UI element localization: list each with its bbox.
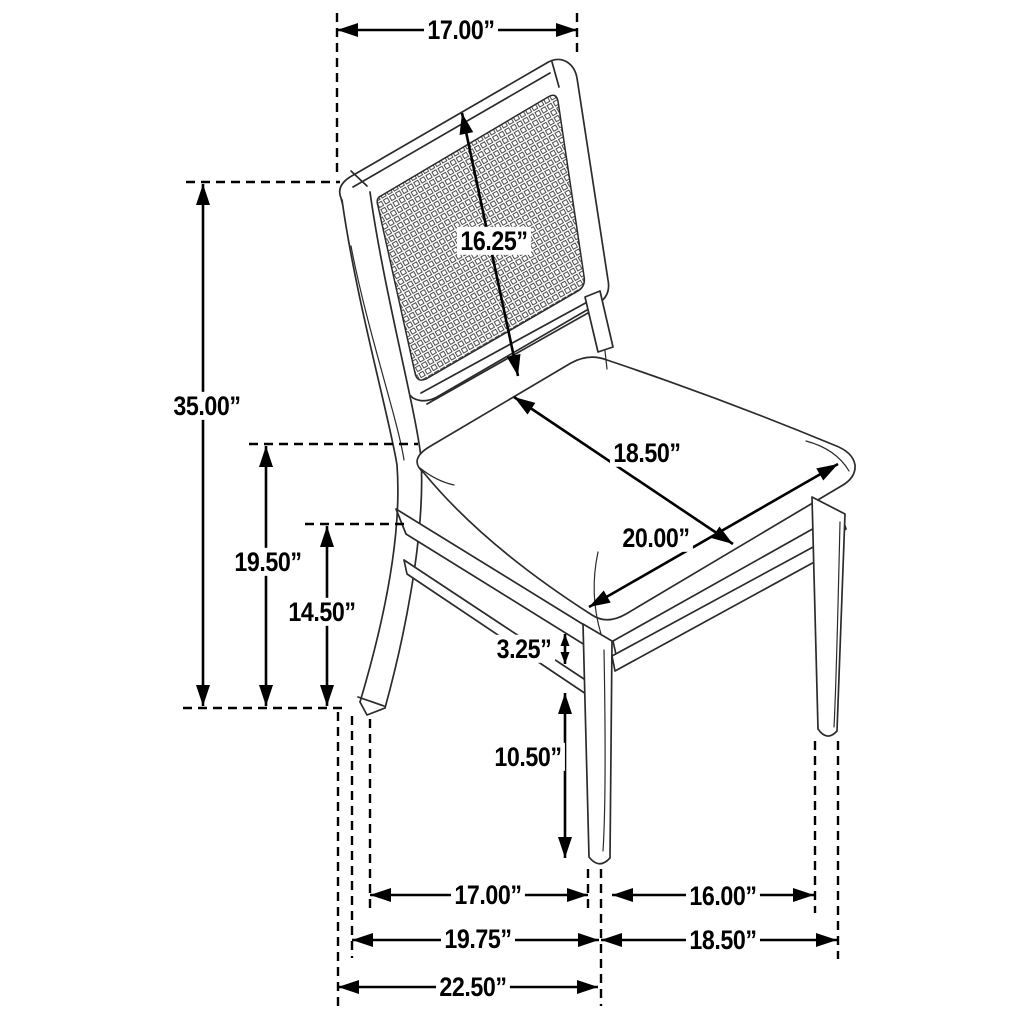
dim-label-apron-height: 14.50” (285, 598, 359, 626)
dim-label-top-width: 17.00” (424, 16, 498, 44)
dim-label-overall-depth: 22.50” (436, 973, 510, 1001)
dim-label-seat-height: 19.50” (231, 548, 305, 576)
dim-label-leg-span-inner: 17.00” (451, 881, 525, 909)
chair-dimension-diagram: 17.00” 16.25” 35.00” 18.50” 20.00” 19.50… (0, 0, 1024, 1024)
dim-label-leg-span-depth: 19.75” (441, 925, 515, 953)
chair-line-art (340, 59, 855, 863)
dim-label-clearance: 10.50” (491, 743, 565, 771)
dim-label-back-panel: 16.25” (457, 227, 531, 255)
dim-label-stretcher: 3.25” (493, 635, 555, 663)
dim-label-seat-width: 20.00” (619, 524, 693, 552)
diagram-artwork (0, 0, 1024, 1024)
dim-label-seat-depth: 18.50” (610, 439, 684, 467)
dim-label-front-leg-span: 16.00” (686, 882, 760, 910)
dim-label-front-width: 18.50” (686, 926, 760, 954)
front-left-leg (583, 624, 612, 864)
dim-label-overall-height: 35.00” (170, 392, 244, 420)
rear-right-post (585, 291, 613, 352)
